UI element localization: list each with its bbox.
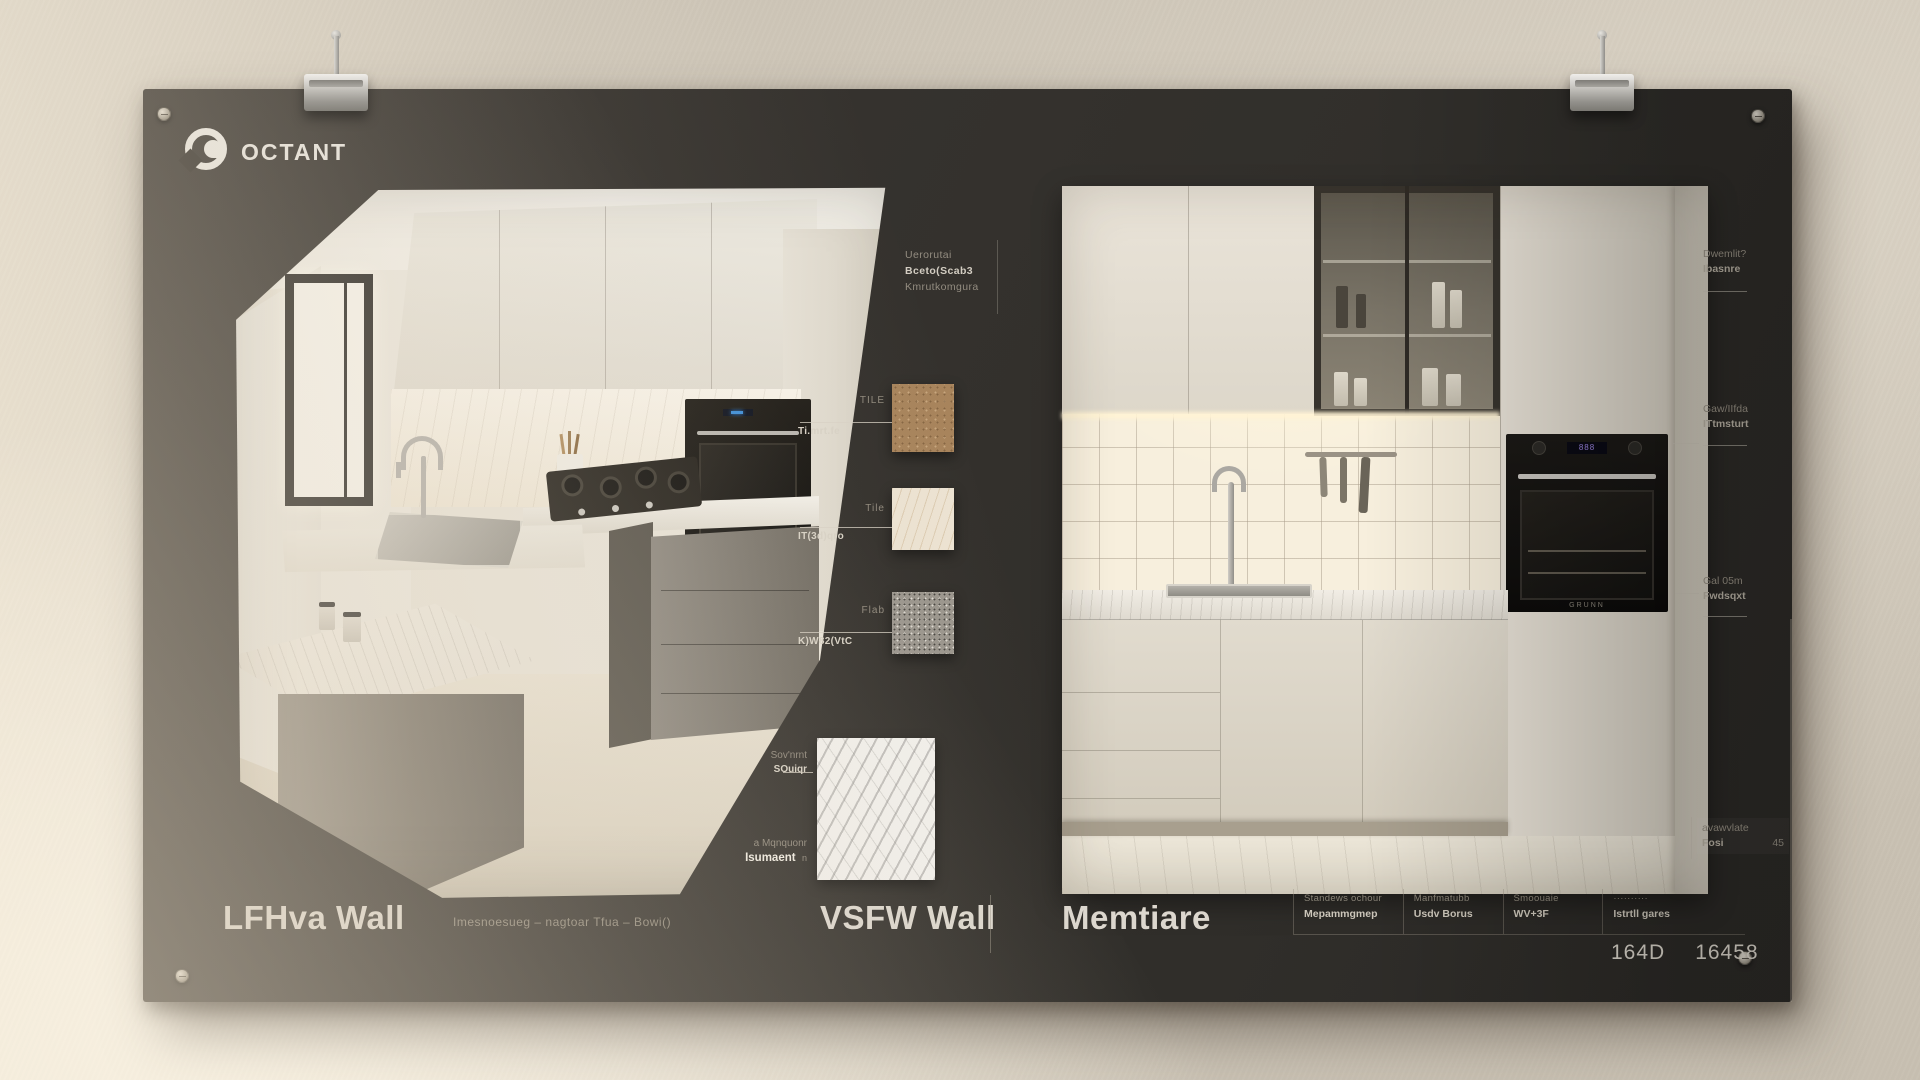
spec-table: Standews ochour Mepammgmep Manfmatubb Us…	[1293, 889, 1745, 935]
oven-handle	[1518, 474, 1656, 479]
cabinet-seam	[711, 199, 712, 399]
spec-column: Manfmatubb Usdv Borus	[1404, 889, 1504, 934]
faucet-spout	[396, 462, 401, 478]
spec-line2: Mepammgmep	[1304, 908, 1393, 920]
label-underline	[1703, 291, 1747, 292]
swatch-note: IT(3d)qro	[798, 531, 894, 542]
oven-display: 888	[1567, 442, 1607, 454]
binder-clip-right	[1570, 30, 1634, 112]
swatch-granite	[892, 592, 954, 654]
drawer-seam	[661, 693, 809, 694]
spec-line1: Smoouaie	[1514, 893, 1593, 904]
under-cabinet-light	[1062, 412, 1500, 419]
right-kitchen-render: 888 GRUNN	[1062, 186, 1708, 894]
burner	[667, 470, 691, 494]
spec-column: Smoouaie WV+3F	[1504, 889, 1604, 934]
label-line: avawvlate	[1702, 821, 1784, 836]
burner	[599, 475, 623, 499]
label-underline	[1703, 616, 1747, 617]
swatch-label: Tile	[833, 503, 885, 514]
clip-lip	[309, 80, 363, 87]
label-line: Gaw/IIfda	[1703, 402, 1789, 417]
toe-kick	[1062, 822, 1508, 836]
screw-top-left	[157, 107, 171, 121]
built-in-oven: 888 GRUNN	[1506, 434, 1668, 612]
cooktop-knob	[645, 501, 653, 509]
margin-label-1: Dwemlit? Ibasnre	[1703, 247, 1789, 277]
oven-led	[731, 411, 743, 414]
hanging-utensil	[1319, 457, 1327, 497]
marble-label-line: Sov'nrnt	[721, 749, 807, 763]
side-wall-panel	[1675, 186, 1708, 894]
annotation-line: Kmrutkomgura	[905, 279, 1045, 295]
swatch-label: TILE	[833, 395, 885, 406]
spec-line1: Manfmatubb	[1414, 893, 1493, 904]
figure-number-1: 164D	[1611, 941, 1665, 965]
brand-name: OCTANT	[241, 139, 347, 166]
base-cabinet-side	[609, 522, 653, 748]
cabinet-seam	[1362, 620, 1363, 836]
spec-column: Standews ochour Mepammgmep	[1294, 889, 1404, 934]
scene: OCTANT	[0, 0, 1920, 1080]
oven-knob	[1532, 441, 1546, 455]
swatch-white-marble	[817, 738, 935, 880]
spec-column: ·········· Istrtll gares	[1603, 889, 1745, 934]
margin-label-4: avawvlate Fosi45	[1697, 818, 1789, 854]
label-tick	[1673, 443, 1699, 444]
label-text: Fosi	[1702, 837, 1724, 849]
margin-label-3: Gal 05m Fwdsqxt	[1703, 574, 1789, 604]
glass-cabinet-mullion	[1405, 186, 1409, 416]
swatch-cream-marble	[892, 488, 954, 550]
sink	[375, 512, 523, 568]
cabinet-seam	[605, 199, 606, 399]
caption-left-title: LFHva Wall	[223, 899, 405, 937]
cabinet-seam	[1188, 186, 1189, 414]
caption-right-title: Memtiare	[1062, 899, 1211, 937]
board-curl-highlight	[1790, 619, 1792, 1002]
upper-cabinets	[393, 199, 817, 399]
callout-line	[800, 422, 892, 423]
marble-label-line-bold: Isumaent n	[709, 851, 807, 865]
spec-line2: WV+3F	[1514, 908, 1593, 920]
utensil	[568, 431, 571, 456]
canister	[1354, 378, 1367, 406]
drawer-seam	[1062, 750, 1220, 751]
spec-line1: ··········	[1613, 893, 1735, 904]
callout-line	[800, 632, 892, 633]
screw-top-right	[1751, 109, 1765, 123]
hanging-utensil	[1340, 457, 1347, 503]
annotation-line: Uerorutai	[905, 247, 1045, 263]
faucet-rod	[1228, 482, 1234, 592]
drawer-seam	[1062, 798, 1220, 799]
marble-label-text: Isumaent	[745, 852, 796, 864]
drawer-seam	[661, 590, 809, 591]
jar	[1336, 286, 1348, 328]
octant-logo-icon	[185, 128, 227, 170]
figure-numbers: 164D 16458	[1611, 941, 1759, 965]
utensil	[559, 434, 565, 456]
oven-knob	[1628, 441, 1642, 455]
caption-mid-title: VSFW Wall	[820, 899, 996, 937]
base-cabinets	[1062, 620, 1508, 836]
canister	[1450, 290, 1462, 328]
caption-left-subtitle: Imesnoesueg – nagtoar Tfua – Bowi()	[453, 915, 671, 929]
callout-line	[800, 527, 892, 528]
caption-divider	[990, 895, 991, 953]
floor-veins	[1062, 836, 1708, 894]
burner	[560, 473, 584, 497]
cabinet-seam	[1220, 620, 1221, 836]
oven-handle	[697, 431, 799, 435]
annotation-rule	[997, 240, 998, 314]
spec-line2: Usdv Borus	[1414, 908, 1493, 920]
utensil-rail	[1305, 452, 1397, 457]
drawer-seam	[1062, 692, 1220, 693]
cabinet-seam	[499, 199, 500, 399]
annotation-line-bold: Bceto(Scab3	[905, 263, 1045, 279]
marble-label-suffix: n	[802, 853, 807, 863]
canister	[1334, 372, 1348, 406]
glass-jar	[319, 606, 335, 630]
oven-door	[1520, 490, 1654, 600]
label-value: 45	[1772, 836, 1784, 851]
oven-rack	[1528, 572, 1646, 574]
spec-line2: Istrtll gares	[1613, 908, 1735, 920]
canister	[1432, 282, 1445, 328]
marble-label-bottom: a Mqnquonr Isumaent n	[709, 837, 807, 865]
cooktop-knob	[578, 508, 586, 516]
screw-bottom-left	[175, 969, 189, 983]
canister	[1446, 374, 1461, 406]
swatch-label: Flab	[833, 605, 885, 616]
oven-brand-text: GRUNN	[1506, 602, 1668, 609]
label-line-bold: ITtmsturt	[1703, 417, 1789, 432]
window-frame-bar	[344, 283, 347, 497]
glass-jar	[343, 616, 361, 642]
swatch-cork	[892, 384, 954, 452]
label-line: Gal 05m	[1703, 574, 1789, 589]
marble-label-line: a Mqnquonr	[709, 837, 807, 851]
canister	[1422, 368, 1438, 406]
base-cabinets	[651, 526, 819, 740]
label-line-bold: Fosi45	[1702, 836, 1784, 851]
presentation-board: OCTANT	[143, 89, 1792, 1002]
window	[285, 274, 373, 506]
margin-label-2: Gaw/IIfda ITtmsturt	[1703, 402, 1789, 432]
label-line-bold: Fwdsqxt	[1703, 589, 1789, 604]
clip-lip	[1575, 80, 1629, 87]
spec-line1: Standews ochour	[1304, 893, 1393, 904]
label-line-bold: Ibasnre	[1703, 262, 1789, 277]
glass-cabinet	[1314, 186, 1500, 416]
upper-cabinets	[1062, 186, 1314, 414]
sink	[1166, 584, 1312, 598]
oven-rack	[1528, 550, 1646, 552]
utensil	[573, 434, 579, 456]
callout-line	[783, 772, 813, 773]
swatch-note: Ti.mrt.fe	[798, 426, 894, 437]
clip-pin-rod	[334, 36, 339, 78]
jar	[1356, 294, 1366, 328]
label-tick	[1675, 593, 1699, 594]
cooktop-knob	[612, 505, 620, 513]
burner	[634, 466, 658, 490]
label-rule	[1691, 817, 1692, 859]
figure-number-2: 16458	[1695, 941, 1758, 965]
faucet-rod	[421, 456, 426, 518]
drawer-seam	[661, 644, 809, 645]
logo-blob	[204, 140, 222, 158]
swatch-note: K)W82(VtC	[798, 636, 894, 647]
clip-pin-rod	[1600, 36, 1605, 78]
annotation-block: Uerorutai Bceto(Scab3 Kmrutkomgura	[905, 247, 1045, 295]
label-underline	[1703, 445, 1747, 446]
marble-label-line-bold: SOuiqr	[721, 763, 807, 777]
binder-clip-left	[304, 30, 368, 112]
label-line: Dwemlit?	[1703, 247, 1789, 262]
